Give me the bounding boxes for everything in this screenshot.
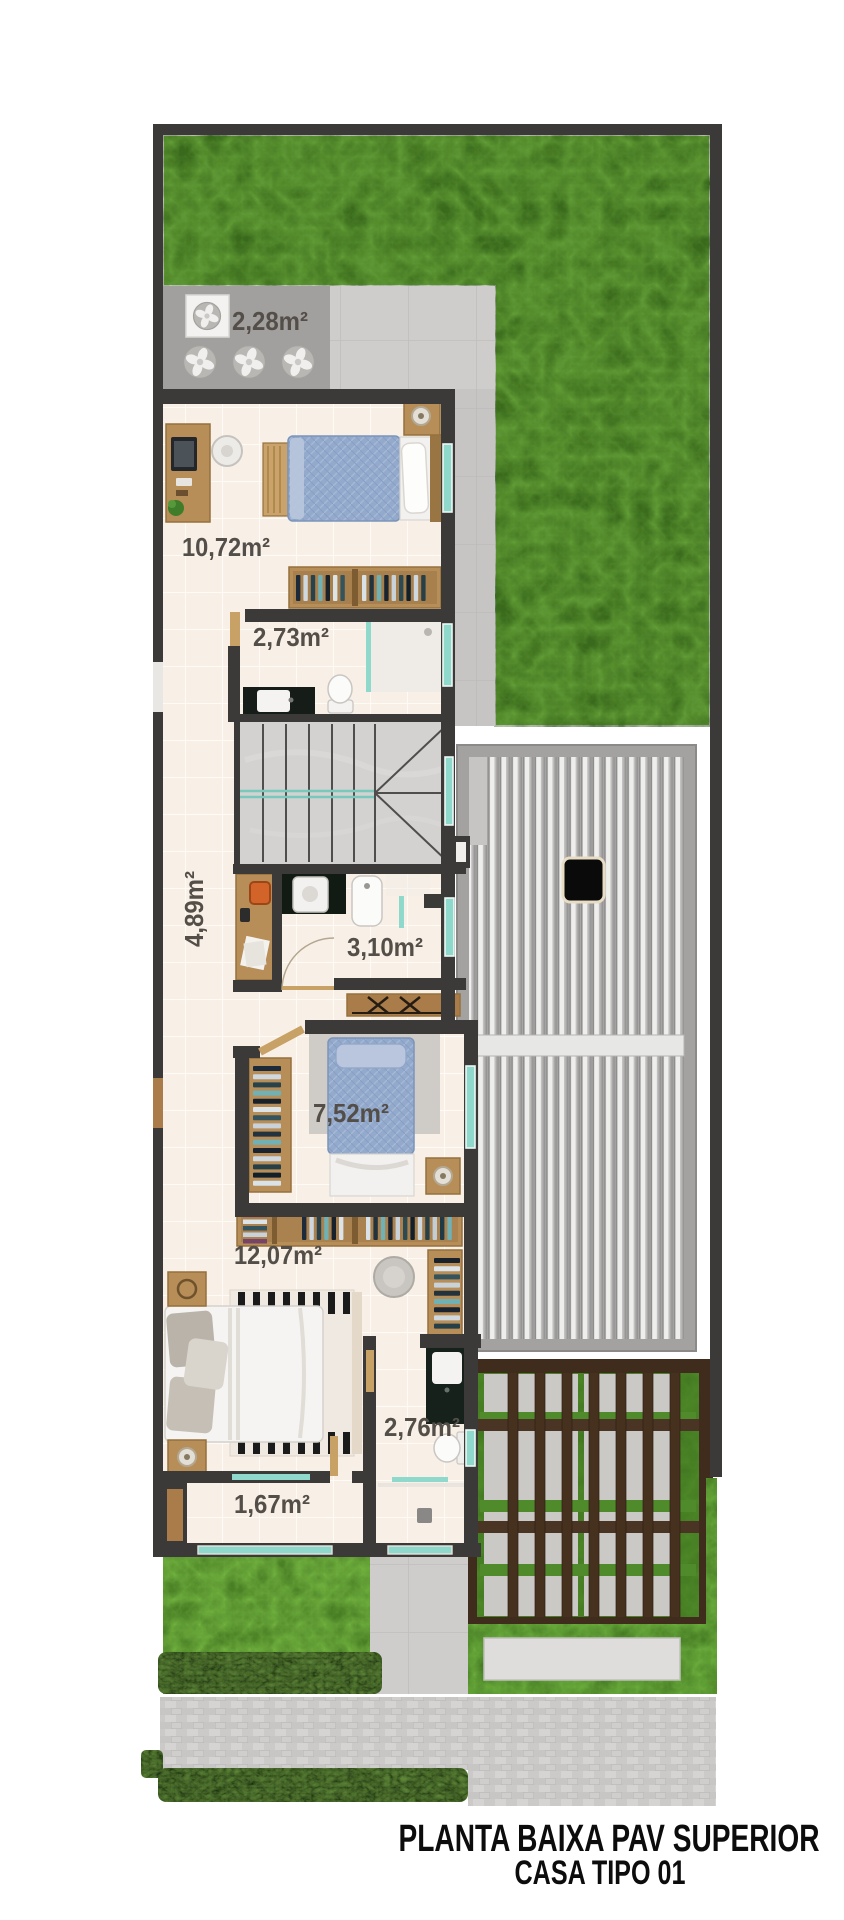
svg-text:10,72m²: 10,72m²	[182, 532, 270, 562]
svg-text:2,28m²: 2,28m²	[232, 306, 308, 336]
svg-text:12,07m²: 12,07m²	[234, 1240, 322, 1270]
svg-text:2,76m²: 2,76m²	[384, 1412, 460, 1442]
svg-text:CASA TIPO 01: CASA TIPO 01	[515, 1854, 686, 1892]
svg-text:3,10m²: 3,10m²	[347, 932, 423, 962]
svg-text:1,67m²: 1,67m²	[234, 1489, 310, 1519]
svg-text:4,89m²: 4,89m²	[179, 871, 209, 947]
svg-text:7,52m²: 7,52m²	[313, 1098, 389, 1128]
svg-text:2,73m²: 2,73m²	[253, 622, 329, 652]
